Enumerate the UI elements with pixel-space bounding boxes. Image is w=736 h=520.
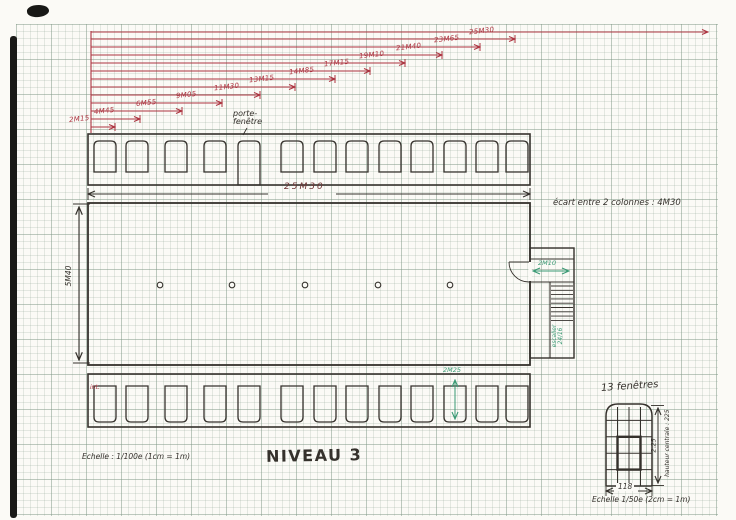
fan-measurement-label: 13M15 (249, 74, 275, 85)
detail-scale-note: Echelle 1/50e (2cm = 1m) (592, 496, 690, 504)
fan-measurement-label: 4M45 (94, 106, 115, 116)
fan-measurement-label: 19M10 (359, 50, 385, 61)
fan-measurement-label: 21M40 (396, 42, 422, 53)
level-title: NIVEAU 3 (266, 447, 363, 465)
detail-height-note: hauteur centrale : 225 (665, 397, 671, 489)
fan-measurement-label: 14M85 (289, 66, 315, 77)
fan-measurement-label: 9M05 (176, 90, 197, 100)
detail-height-label: 2.25 (651, 427, 658, 463)
total-width-label: 25M30 (284, 183, 325, 192)
stair-label: escalier 24/16 (552, 312, 564, 360)
interior-label: int. (90, 385, 100, 391)
fan-measurement-label: 6M55 (136, 98, 157, 108)
stair-width-label: 2M10 (538, 260, 556, 267)
column-spacing-note: écart entre 2 colonnes : 4M30 (553, 199, 681, 208)
detail-width-label: 118 (616, 483, 634, 491)
porte-fenetre-label: porte- fenêtre (233, 110, 262, 127)
fan-measurement-label: 23M65 (434, 34, 460, 45)
scanned-plan-page: porte- fenêtre 25M30 écart entre 2 colon… (0, 0, 736, 520)
fan-measurement-label: 11M30 (214, 82, 240, 93)
fan-measurement-label: 25M30 (469, 26, 495, 37)
handwritten-annotations: porte- fenêtre 25M30 écart entre 2 colon… (0, 0, 736, 520)
detail-title: 13 fenêtres (601, 380, 659, 394)
fan-measurement-label: 17M15 (324, 58, 350, 69)
fan-measurement-label: 2M15 (69, 114, 90, 124)
main-scale-note: Echelle : 1/100e (1cm = 1m) (82, 453, 190, 461)
window-height-label: 2M25 (443, 367, 461, 374)
plan-height-label: 5M40 (65, 253, 73, 299)
